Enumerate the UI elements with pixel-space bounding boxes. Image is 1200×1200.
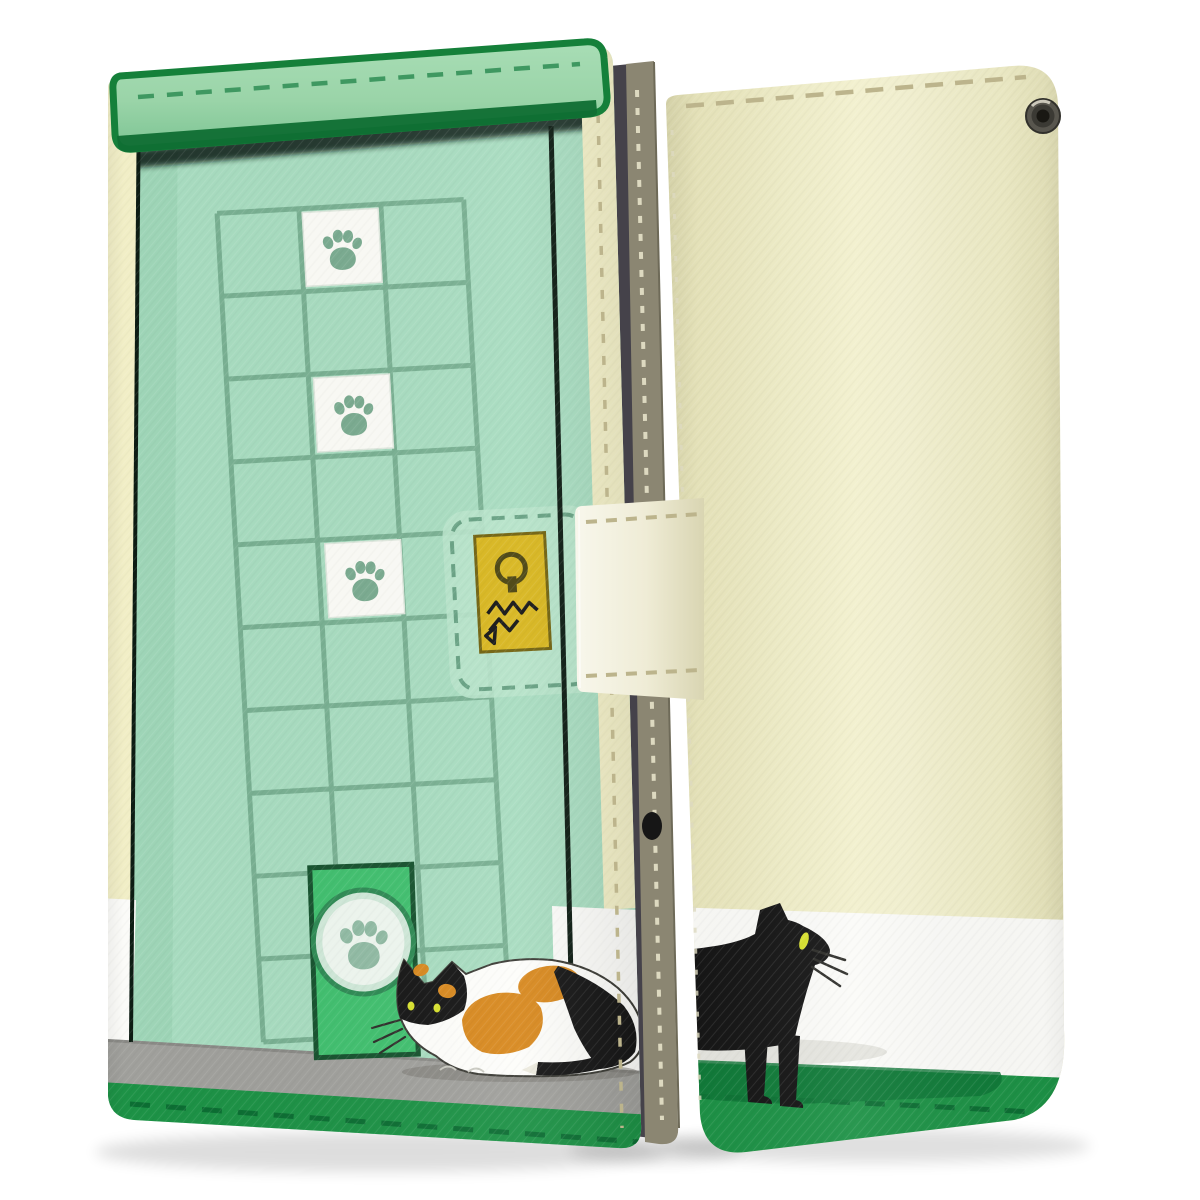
- clasp-strap: [575, 498, 704, 700]
- strap-eyelet: [1026, 99, 1060, 133]
- product-photo-canvas: [0, 0, 1200, 1200]
- strap-edge-highlight: [579, 510, 580, 688]
- strap-band: [575, 498, 704, 700]
- eyelet-hole: [1037, 110, 1050, 123]
- product-photo-stage: [0, 0, 1200, 1200]
- front-curvature-shading: [90, 30, 660, 1170]
- black-cat-tail-tip: [642, 812, 662, 840]
